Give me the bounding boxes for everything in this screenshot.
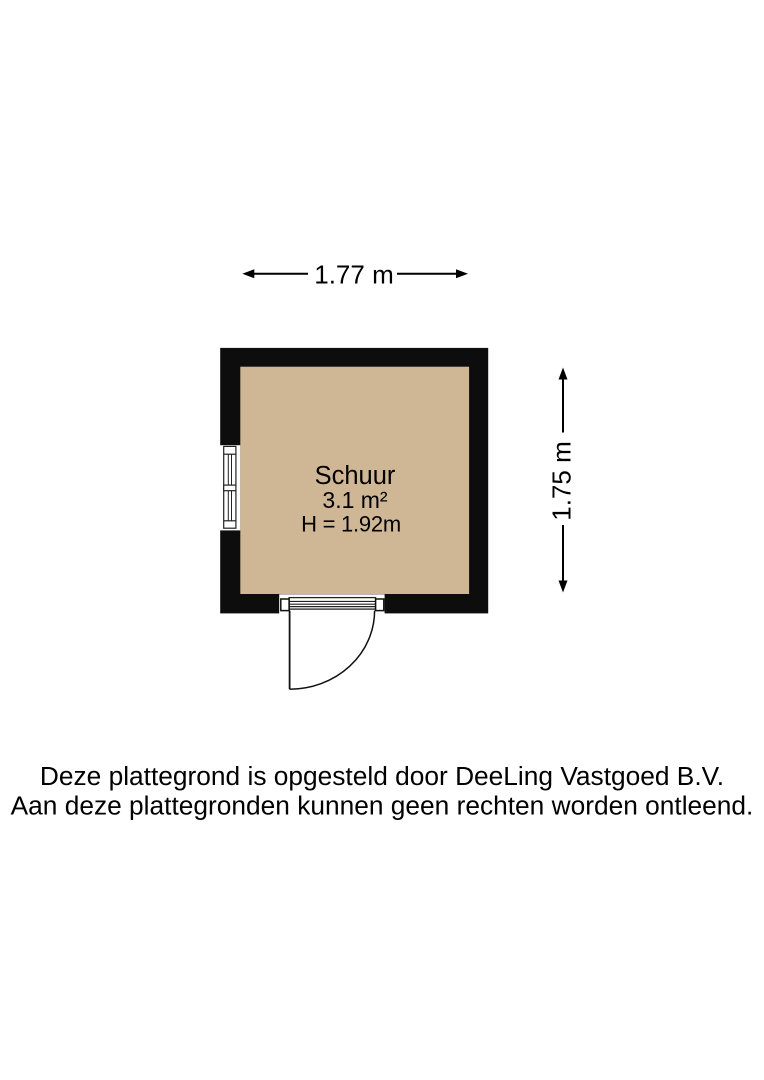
svg-text:3.1 m²: 3.1 m² xyxy=(322,487,388,513)
svg-text:Schuur: Schuur xyxy=(315,462,396,490)
svg-text:Deze plattegrond is opgesteld: Deze plattegrond is opgesteld door DeeLi… xyxy=(40,761,724,791)
svg-text:H = 1.92m: H = 1.92m xyxy=(301,511,401,536)
svg-text:1.77 m: 1.77 m xyxy=(314,259,394,289)
svg-text:Aan deze plattegronden kunnen: Aan deze plattegronden kunnen geen recht… xyxy=(11,790,754,820)
svg-text:1.75 m: 1.75 m xyxy=(546,441,576,521)
